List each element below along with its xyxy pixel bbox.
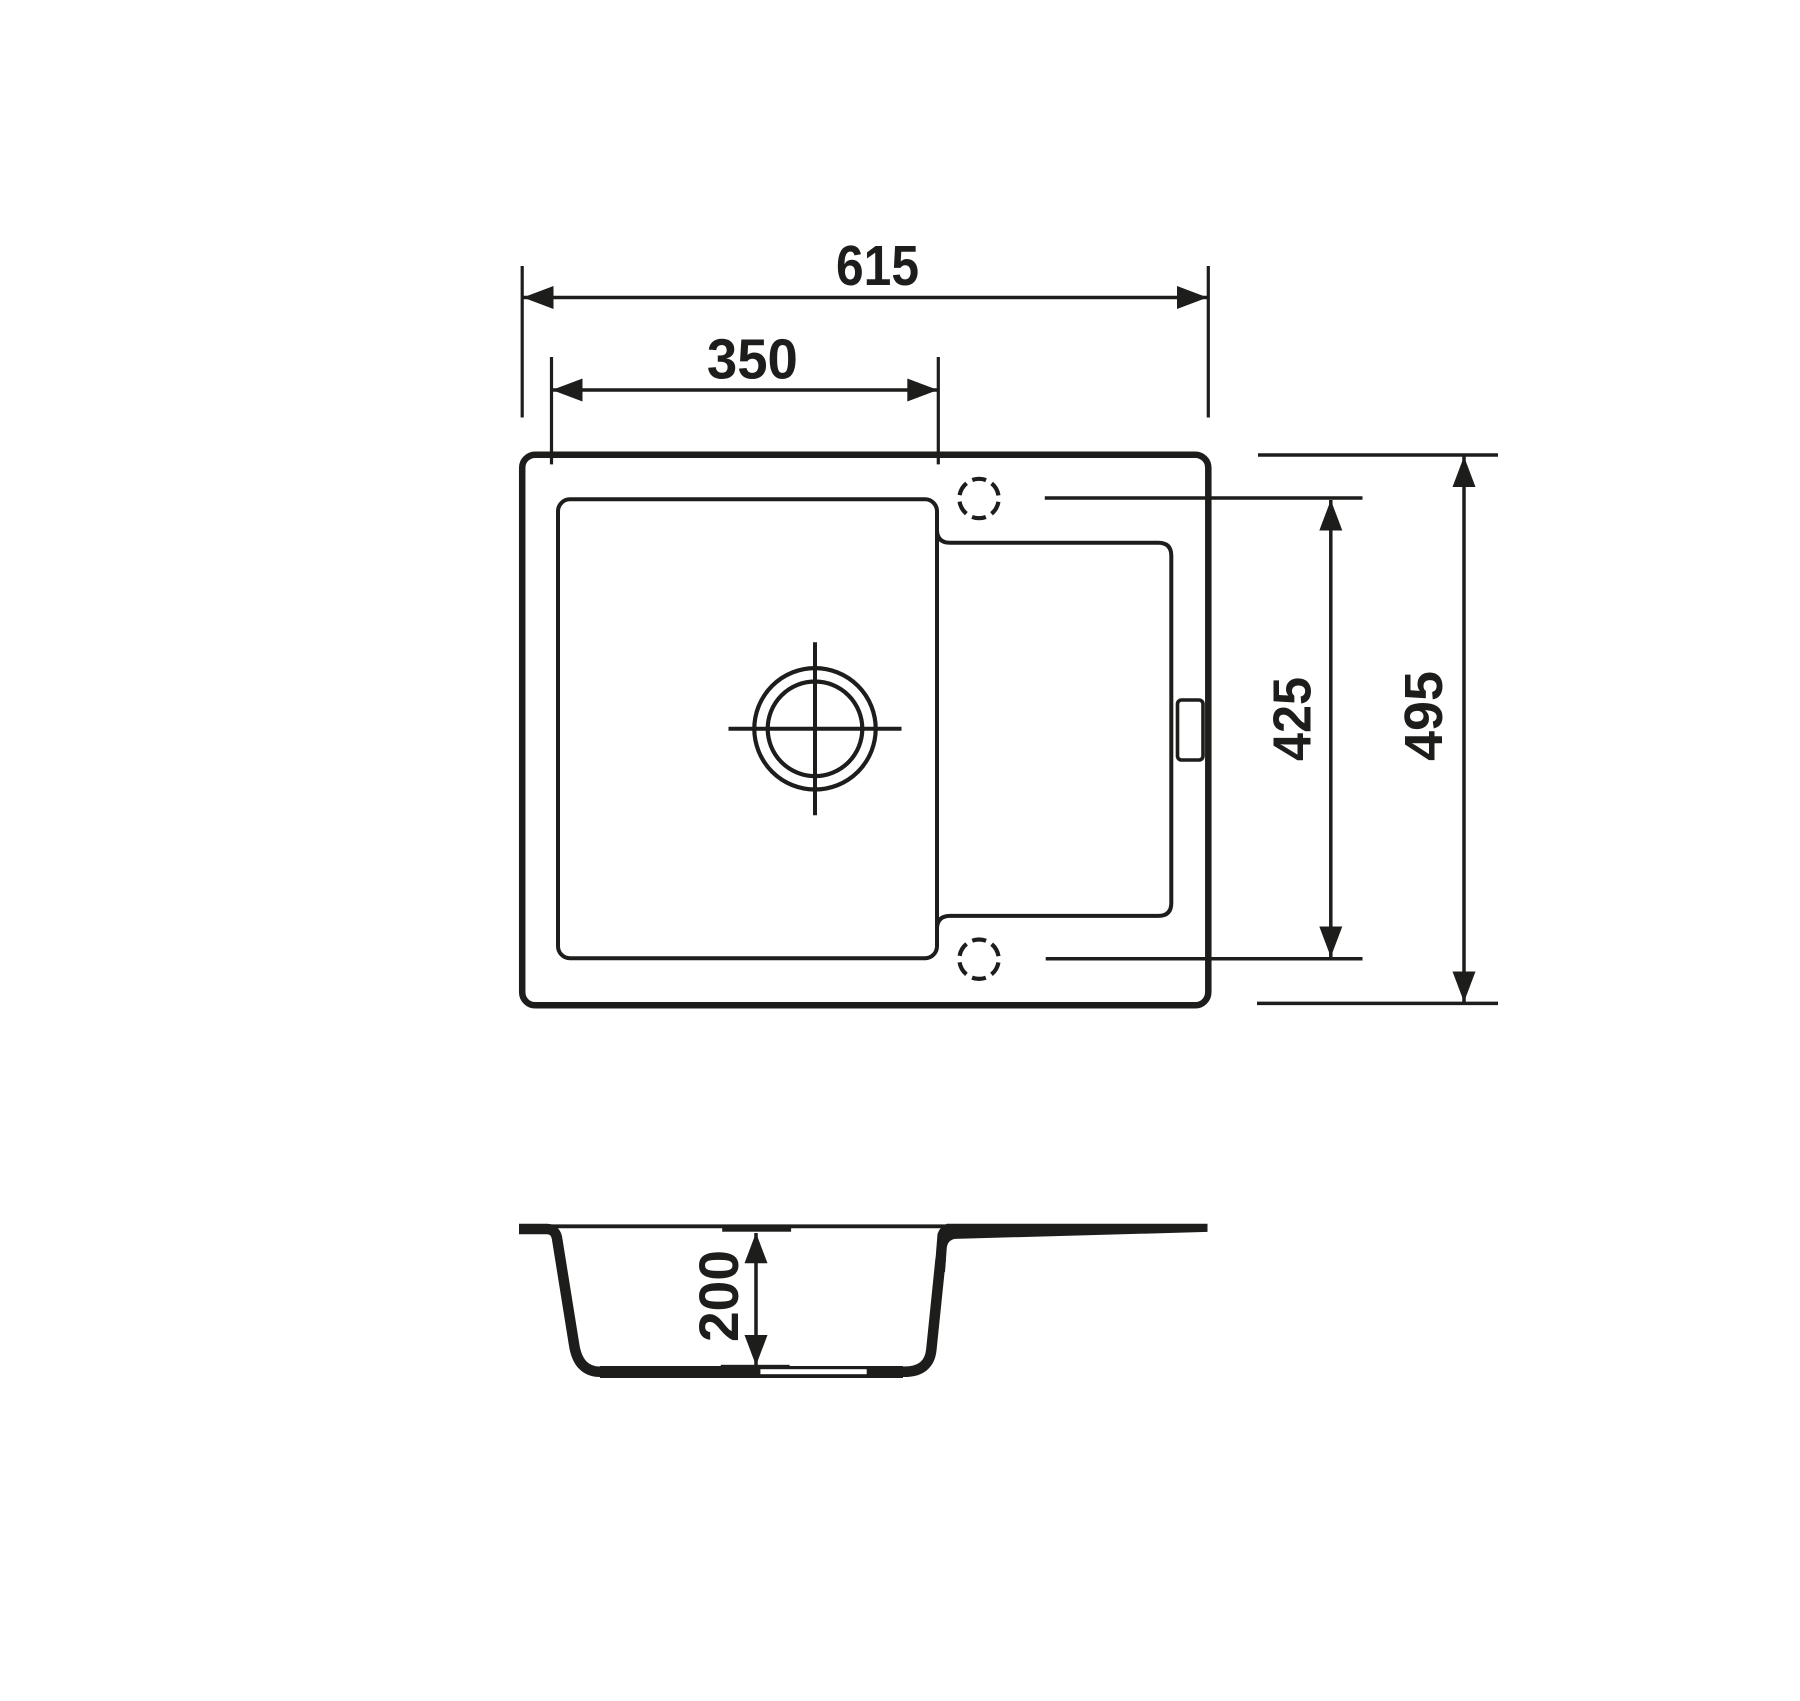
- svg-text:495: 495: [1395, 671, 1454, 761]
- svg-text:615: 615: [836, 234, 919, 298]
- svg-text:425: 425: [1264, 677, 1323, 761]
- svg-text:350: 350: [707, 328, 798, 392]
- svg-text:200: 200: [687, 1250, 750, 1342]
